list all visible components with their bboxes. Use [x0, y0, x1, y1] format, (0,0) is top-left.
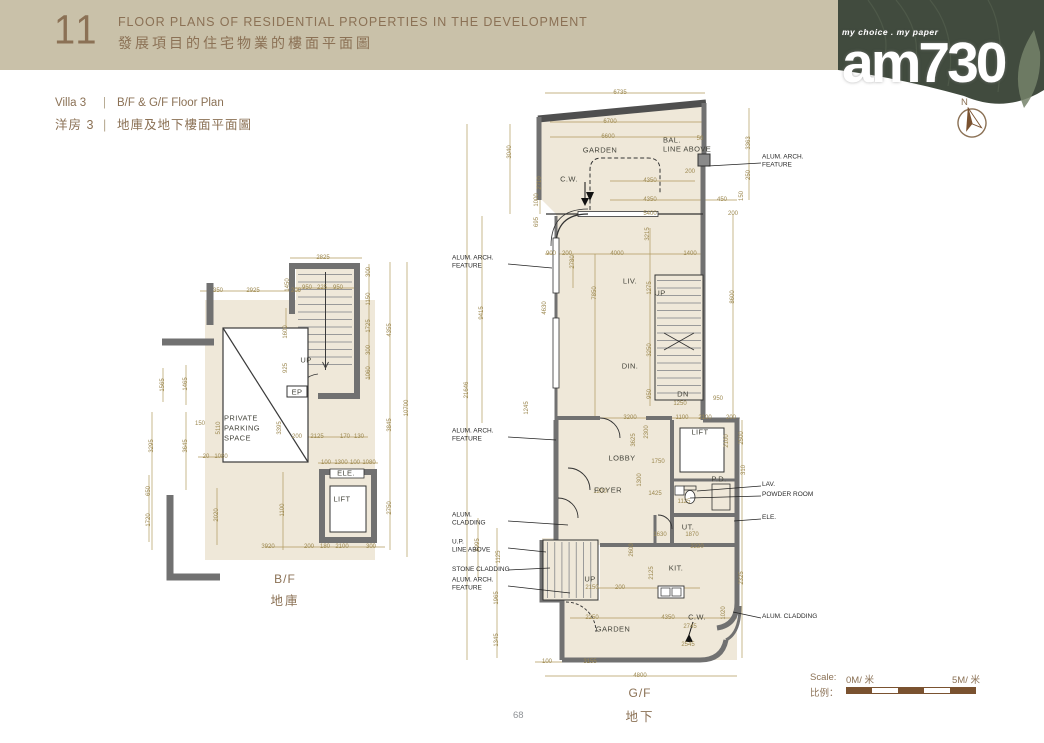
dim-label: 200 [685, 169, 695, 175]
dim-label: 2710 [537, 176, 543, 189]
dim-label: 310 [741, 465, 747, 475]
room-label: LIV. [623, 277, 637, 285]
dim-label: 5110 [216, 422, 222, 435]
page-number: 68 [513, 710, 524, 721]
room-label: UP [654, 289, 665, 297]
page-title: FLOOR PLANS OF RESIDENTIAL PROPERTIES IN… [118, 15, 588, 29]
dim-label: 2020 [214, 508, 220, 521]
annotation-label: STONE CLADDING [452, 566, 508, 574]
dim-label: 3920 [261, 544, 274, 550]
dim-label: 3363 [746, 136, 752, 149]
room-label: LIFT [333, 495, 350, 503]
dim-label: 1245 [524, 401, 530, 414]
dim-label: 4630 [542, 301, 548, 314]
room-label: UP [584, 575, 595, 583]
separator: | [103, 97, 117, 109]
dim-label: 2100 [724, 434, 730, 447]
dim-label: 2220 [690, 544, 703, 550]
dim-label: 200 [728, 211, 738, 217]
dim-label: 1400 [683, 251, 696, 257]
scale-bar-row: 比例： [810, 685, 1020, 698]
scale-bar: Scale: 0M/ 米 5M/ 米 比例： [810, 672, 1020, 698]
dim-label: 200 [291, 288, 301, 294]
annotation-label: ALUM. ARCH.FEATURE [452, 255, 508, 272]
room-label: P.D. [711, 475, 726, 483]
dim-label: 9415 [479, 306, 485, 319]
dim-label: 5400 [643, 211, 656, 217]
dim-label: 3215 [645, 227, 651, 240]
dim-label: 21646 [464, 382, 470, 399]
dim-label: 950 [713, 396, 723, 402]
compass-north-label: N [961, 97, 968, 108]
dim-label: 100 [350, 460, 360, 466]
dim-label: 8600 [730, 290, 736, 303]
dim-label: 1425 [648, 491, 661, 497]
dim-label: 250 [746, 170, 752, 180]
room-label: LOBBY [608, 454, 635, 462]
villa-name-zh: 洋房 3 [55, 114, 103, 133]
dim-label: 2545 [681, 642, 694, 648]
room-label: PRIVATE [224, 414, 258, 422]
dim-label: 2500 [739, 431, 745, 444]
dim-label: 1465 [183, 377, 189, 390]
dim-label: 2600 [629, 543, 635, 556]
dim-label: 3295 [149, 439, 155, 452]
room-label: C.W. [688, 613, 706, 621]
bf-plan: B/F 地庫 282595022595035029252001450300115… [140, 250, 440, 620]
dim-label: 200 [726, 415, 736, 421]
dim-label: 4800 [633, 673, 646, 679]
dim-label: 300 [366, 345, 372, 355]
dim-label: 1080 [214, 454, 227, 460]
scale-segment [872, 687, 898, 694]
gf-caption-chinese: 地下 [625, 706, 654, 725]
dim-label: 6600 [601, 134, 614, 140]
room-label: LIFT [691, 428, 708, 436]
dim-label: 1100 [676, 415, 689, 421]
bf-floorplan-drawing [140, 250, 440, 620]
dim-label: 1565 [160, 378, 166, 391]
room-label: UT. [682, 523, 694, 531]
annotation-label: ALUM. ARCH.FEATURE [452, 428, 508, 445]
dim-label: 180 [320, 544, 330, 550]
dim-label: 1750 [651, 459, 664, 465]
dim-label: 2750 [387, 501, 393, 514]
dim-label: 1300 [637, 473, 643, 486]
dim-label: 2300 [644, 425, 650, 438]
plan-subtitle: Villa 3|B/F & G/F Floor Plan 洋房 3|地庫及地下樓… [55, 97, 252, 131]
dim-label: 1345 [494, 633, 500, 646]
dim-label: 4355 [387, 323, 393, 336]
dim-label: 925 [283, 363, 289, 373]
dim-label: 1725 [366, 319, 372, 332]
room-label: EP [292, 388, 303, 396]
dim-label: 3155 [583, 659, 596, 665]
dim-label: 10700 [404, 400, 410, 417]
room-label: SPACE [224, 434, 251, 442]
room-label: GARDEN [596, 625, 631, 633]
dim-label: 1870 [685, 532, 698, 538]
bf-caption: B/F [274, 572, 296, 586]
dim-label: 150 [739, 191, 745, 201]
annotation-label: ALUM. ARCH.FEATURE [762, 154, 804, 171]
dim-label: 1300 [334, 460, 347, 466]
am730-logo: my choice . my paper am730 [842, 27, 1032, 89]
dim-label: 650 [146, 486, 152, 496]
dim-label: 3250 [647, 343, 653, 356]
dim-label: 130 [354, 434, 364, 440]
dim-label: 20 [203, 454, 210, 460]
villa-name-en: Villa 3 [55, 97, 103, 109]
dim-label: 1720 [146, 513, 152, 526]
dim-label: 150 [195, 421, 205, 427]
dim-label: 4350 [643, 197, 656, 203]
dim-label: 2780 [570, 255, 576, 268]
annotation-label: U.P.LINE ABOVE [452, 539, 508, 556]
dim-label: 695 [534, 217, 540, 227]
annotation-label: POWDER ROOM [762, 491, 813, 499]
section-number: 11 [54, 8, 99, 54]
dim-label: 2100 [335, 544, 348, 550]
dim-label: 2125 [310, 434, 323, 440]
dim-label: 200 [304, 544, 314, 550]
scale-end-value: 5M/ 米 [952, 672, 980, 686]
annotation-label: ALUM. CLADDING [762, 613, 817, 621]
annotation-label: LAV. [762, 481, 775, 489]
dim-label: 170 [340, 434, 350, 440]
dim-label: 950 [647, 389, 653, 399]
scale-labels: Scale: 0M/ 米 5M/ 米 [810, 672, 1020, 685]
room-label: GARDEN [583, 146, 618, 154]
page-title-chinese: 發展項目的住宅物業的樓面平面圖 [118, 33, 373, 53]
dim-label: 1080 [362, 460, 375, 466]
dim-label: 200 [615, 585, 625, 591]
floor-plan-name-zh: 地庫及地下樓面平面圖 [117, 118, 252, 132]
room-label: FOYER [594, 486, 622, 494]
scale-segment [846, 687, 872, 694]
gf-caption: G/F [629, 686, 652, 700]
floor-plan-name-en: B/F & G/F Floor Plan [117, 97, 224, 109]
dim-label: 4000 [610, 251, 623, 257]
room-label: BAL. [663, 136, 681, 144]
room-label: UP [300, 356, 311, 364]
dim-label: 1600 [283, 325, 289, 338]
scale-segment [950, 687, 976, 694]
dim-label: 2325 [739, 571, 745, 584]
dim-label: 3200 [623, 415, 636, 421]
dim-label: 50 [697, 136, 704, 142]
room-label: DIN. [622, 362, 639, 370]
scale-segment [924, 687, 950, 694]
dim-label: 1125 [678, 499, 691, 505]
dim-label: 1250 [673, 401, 686, 407]
dim-label: 6735 [613, 90, 626, 96]
annotation-label: ALUM.CLADDING [452, 512, 508, 529]
dim-label: 3395 [277, 421, 283, 434]
annotation-label: ELE. [762, 514, 776, 522]
bf-caption-chinese: 地庫 [270, 590, 299, 609]
separator: | [103, 118, 117, 132]
gf-plan: G/F 地下 673567006600503040271010006953363… [450, 88, 780, 738]
dim-label: 7850 [592, 286, 598, 299]
dim-label: 100 [542, 659, 552, 665]
dim-label: 1060 [366, 366, 372, 379]
room-label: LINE ABOVE [663, 145, 711, 153]
scale-segment [898, 687, 924, 694]
dim-label: 6700 [603, 119, 616, 125]
scale-label-en: Scale: [810, 672, 836, 683]
dim-label: 300 [366, 544, 376, 550]
subtitle-english: Villa 3|B/F & G/F Floor Plan [55, 97, 252, 114]
scale-start-value: 0M/ 米 [846, 672, 874, 686]
room-label: PARKING [224, 424, 260, 432]
dim-label: 3645 [183, 439, 189, 452]
dim-label: 1000 [534, 193, 540, 206]
dim-label: 225 [317, 285, 327, 291]
dim-label: 3845 [387, 418, 393, 431]
scale-label-zh: 比例： [810, 688, 839, 699]
room-label: ELE. [337, 469, 355, 477]
annotation-label: ALUM. ARCH.FEATURE [452, 577, 508, 594]
dim-label: 2125 [649, 566, 655, 579]
room-label: C.W. [560, 175, 578, 183]
dim-label: 900 [546, 251, 556, 257]
dim-label: 2925 [246, 288, 259, 294]
subtitle-chinese: 洋房 3|地庫及地下樓面平面圖 [55, 114, 252, 131]
dim-label: 950 [333, 285, 343, 291]
dim-label: 2825 [316, 255, 329, 261]
dim-label: 1100 [280, 504, 286, 517]
dim-label: 950 [302, 285, 312, 291]
dim-label: 300 [366, 267, 372, 277]
dim-label: 3040 [507, 145, 513, 158]
logo-wordmark: am730 [842, 37, 1032, 89]
dim-label: 1450 [285, 278, 291, 291]
dim-label: 200 [292, 434, 302, 440]
dim-label: 1150 [366, 293, 372, 306]
dim-label: 2150 [585, 585, 598, 591]
scale-bar-graphic [846, 687, 976, 694]
dim-label: 450 [717, 197, 727, 203]
room-label: KIT. [669, 564, 684, 572]
dim-label: 4350 [661, 615, 674, 621]
brochure-page: 11 FLOOR PLANS OF RESIDENTIAL PROPERTIES… [0, 0, 1044, 743]
dim-label: 2100 [698, 415, 711, 421]
north-compass-icon: N [948, 94, 996, 144]
room-label: DN [677, 390, 689, 398]
dim-label: 100 [321, 460, 331, 466]
dim-label: 1630 [653, 532, 666, 538]
dim-label: 2250 [585, 615, 598, 621]
dim-label: 1275 [647, 281, 653, 294]
dim-label: 2745 [683, 624, 696, 630]
dim-label: 4350 [643, 178, 656, 184]
dim-label: 350 [213, 288, 223, 294]
dim-label: 3625 [631, 433, 637, 446]
dim-label: 1020 [721, 606, 727, 619]
